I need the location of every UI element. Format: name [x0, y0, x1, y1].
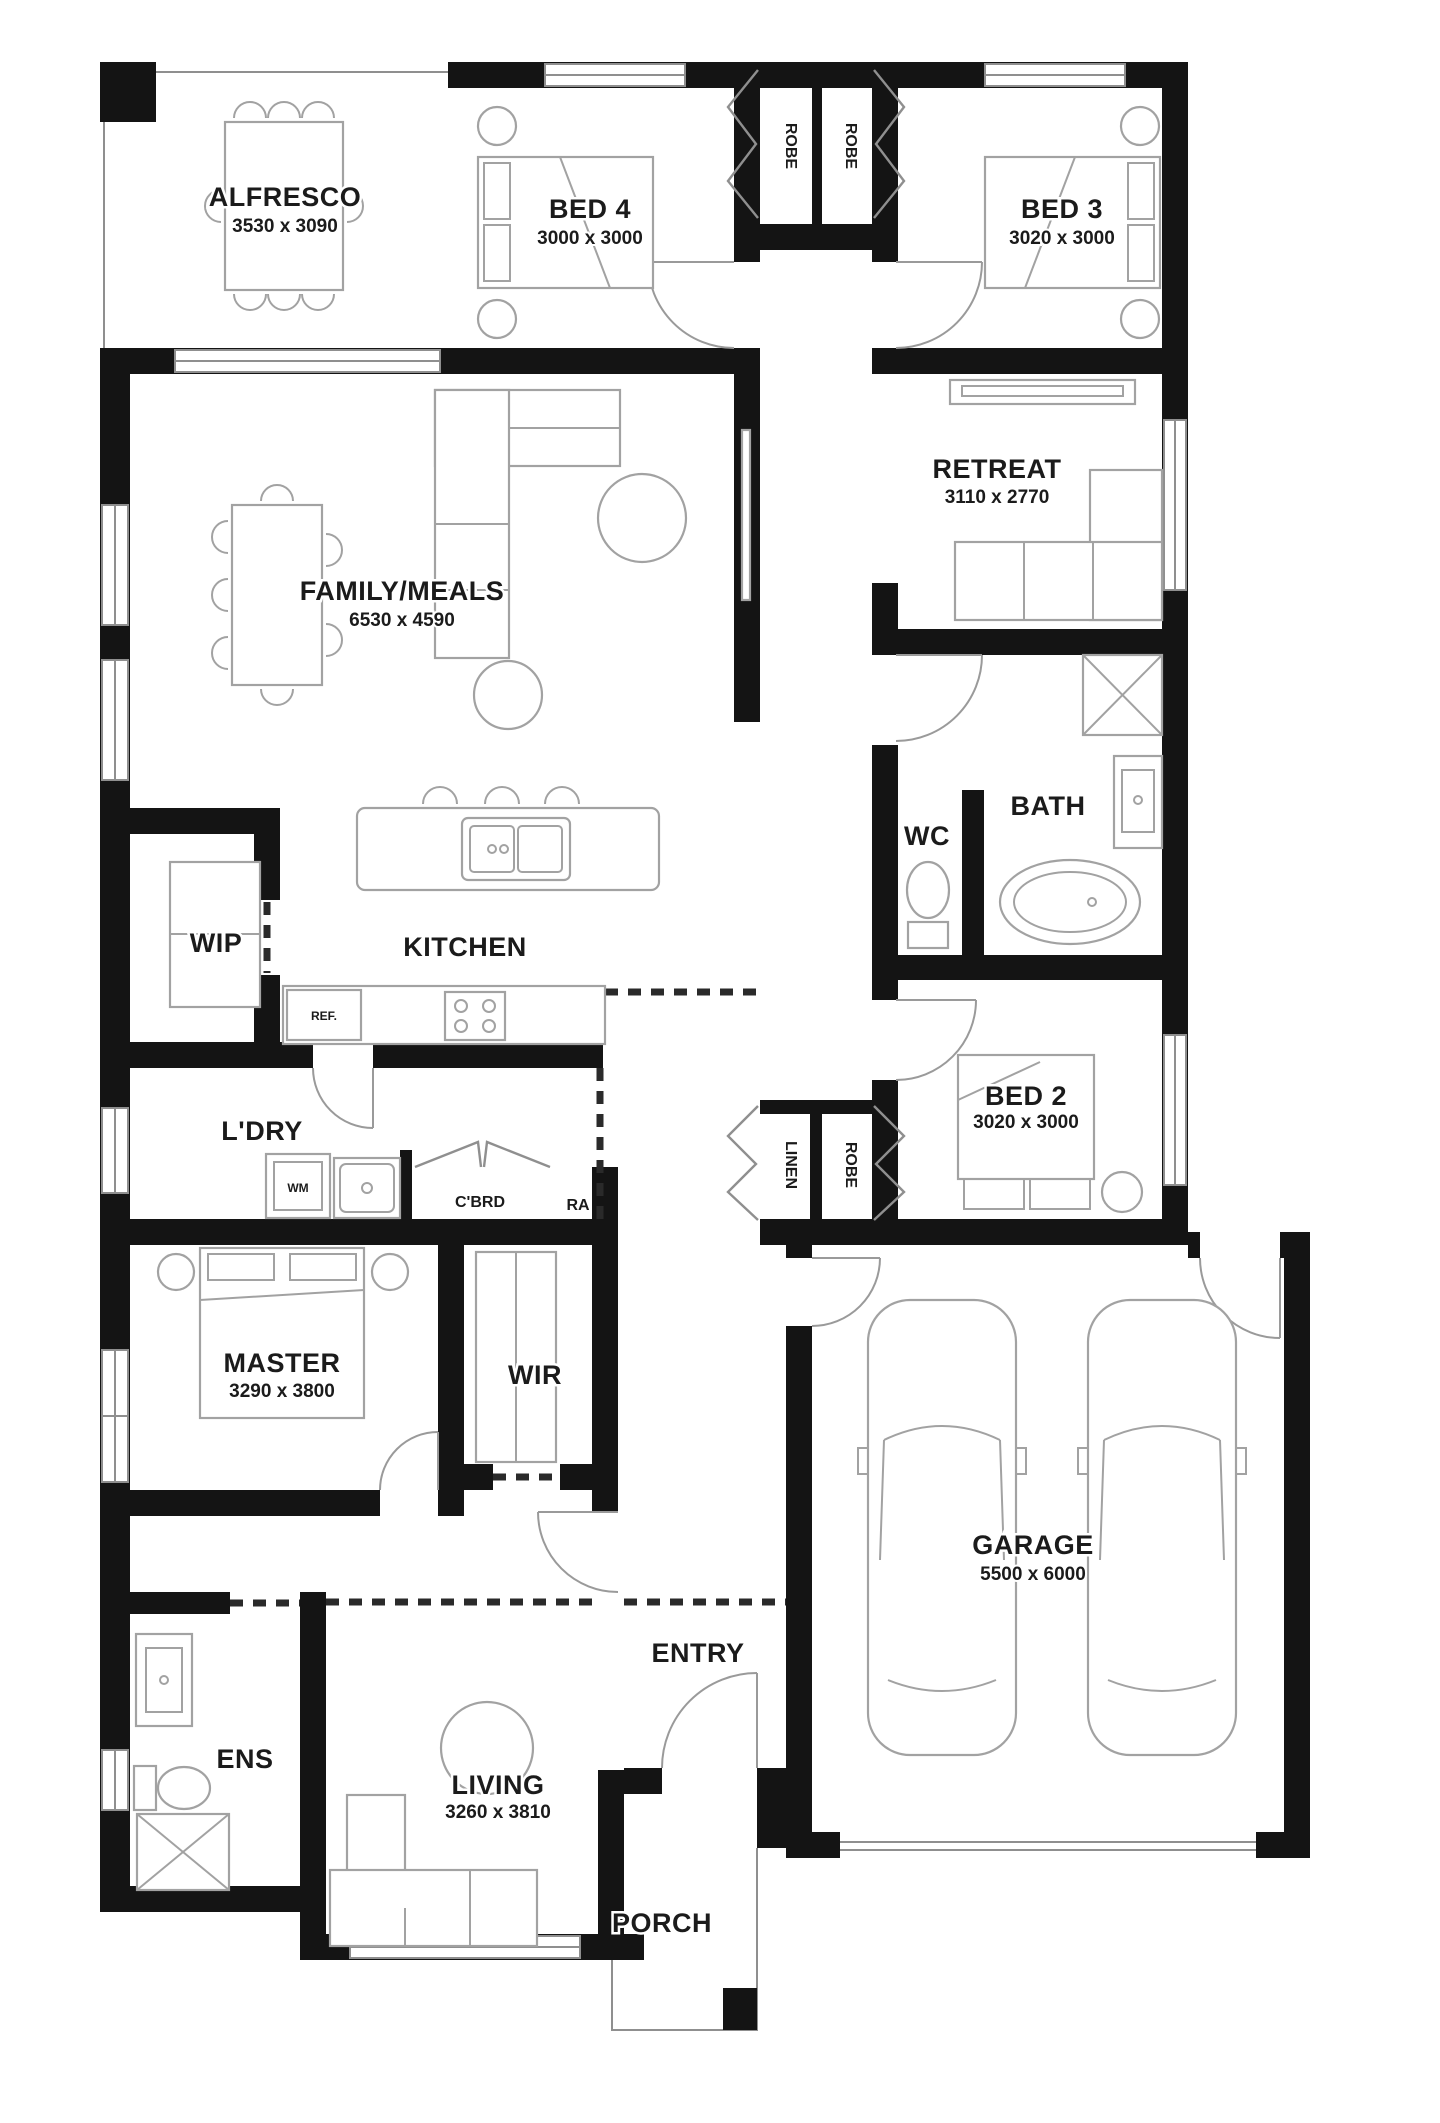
sofa-icon [435, 390, 620, 658]
room-dims-bed3: 3020 x 3000 [1009, 228, 1115, 249]
car-icon [1078, 1300, 1246, 1755]
room-dims-bed4: 3000 x 3000 [537, 228, 643, 249]
door-arc [896, 655, 982, 741]
coffee-table-icon [474, 661, 542, 729]
room-dims-family: 6530 x 4590 [349, 610, 455, 631]
laundry-trough-icon [334, 1158, 400, 1218]
room-dims-garage: 5500 x 6000 [980, 1564, 1086, 1585]
shower-icon [1083, 655, 1162, 735]
tv-icon [742, 430, 750, 600]
floor-plan-page: ALFRESCO 3530 x 3090 BED 4 3000 x 3000 B… [0, 0, 1440, 2123]
cooktop-icon [445, 992, 505, 1040]
room-label-bed2: BED 2 [985, 1081, 1067, 1111]
room-label-robe-bed3: ROBE [842, 123, 859, 170]
window [102, 1350, 128, 1416]
window [545, 64, 685, 86]
room-label-bath: BATH [1011, 791, 1086, 821]
toilet-icon [134, 1766, 210, 1810]
bed-icon [958, 1055, 1142, 1212]
vanity-icon [136, 1634, 192, 1726]
window [102, 1750, 128, 1810]
door-arc [380, 1432, 438, 1490]
room-label-retreat: RETREAT [933, 454, 1062, 484]
linen-bifold-icon [728, 1106, 758, 1220]
room-dims-alfresco: 3530 x 3090 [232, 216, 338, 237]
room-dims-master: 3290 x 3800 [229, 1381, 335, 1402]
vanity-icon [1114, 756, 1162, 848]
room-label-living: LIVING [451, 1770, 544, 1800]
room-label-ra: RA [566, 1197, 590, 1214]
window [102, 1416, 128, 1482]
room-label-wc: WC [904, 821, 950, 851]
room-label-garage: GARAGE [972, 1530, 1094, 1560]
window [1164, 1035, 1186, 1185]
shower-icon [137, 1814, 229, 1890]
room-label-wip: WIP [190, 928, 243, 958]
room-dims-bed2: 3020 x 3000 [973, 1112, 1079, 1133]
floor-plan-drawing: ALFRESCO 3530 x 3090 BED 4 3000 x 3000 B… [0, 0, 1440, 2123]
room-label-ens: ENS [216, 1744, 273, 1774]
round-rug-icon [598, 474, 686, 562]
room-label-cbrd: C'BRD [455, 1194, 505, 1211]
bathtub-icon [1000, 860, 1140, 944]
window [102, 505, 128, 625]
door-arc [896, 262, 982, 348]
room-label-robe-bed4: ROBE [782, 123, 799, 170]
room-label-master: MASTER [224, 1348, 341, 1378]
window [102, 660, 128, 780]
room-label-bed3: BED 3 [1021, 194, 1103, 224]
room-label-linen: LINEN [782, 1141, 799, 1189]
door-arc [648, 262, 734, 348]
door-arc [662, 1673, 757, 1768]
tv-unit-icon [950, 380, 1135, 404]
room-label-ldry: L'DRY [221, 1116, 302, 1146]
cupboard-bifold-icon [415, 1142, 481, 1167]
room-label-wir: WIR [508, 1360, 562, 1390]
kitchen-island-icon [357, 787, 659, 890]
door-arc [812, 1258, 880, 1326]
washer-label: WM [287, 1181, 308, 1195]
room-label-robe-bed2: ROBE [842, 1142, 859, 1189]
window [175, 350, 440, 372]
room-label-porch: PORCH [612, 1908, 712, 1938]
toilet-icon [907, 862, 949, 948]
room-dims-retreat: 3110 x 2770 [945, 487, 1050, 508]
cupboard-bifold-icon [484, 1142, 550, 1167]
room-label-entry: ENTRY [651, 1638, 744, 1668]
room-label-alfresco: ALFRESCO [209, 182, 362, 212]
car-icon [858, 1300, 1026, 1755]
window [1164, 420, 1186, 590]
window [102, 1108, 128, 1193]
door-arc [313, 1068, 373, 1128]
door-arc [538, 1512, 618, 1592]
wardrobe-icon [476, 1252, 556, 1462]
window [985, 64, 1125, 86]
room-label-bed4: BED 4 [549, 194, 631, 224]
room-label-kitchen: KITCHEN [403, 932, 527, 962]
room-dims-living: 3260 x 3810 [445, 1802, 551, 1823]
room-label-family: FAMILY/MEALS [300, 576, 505, 606]
fridge-label: REF. [311, 1009, 337, 1023]
